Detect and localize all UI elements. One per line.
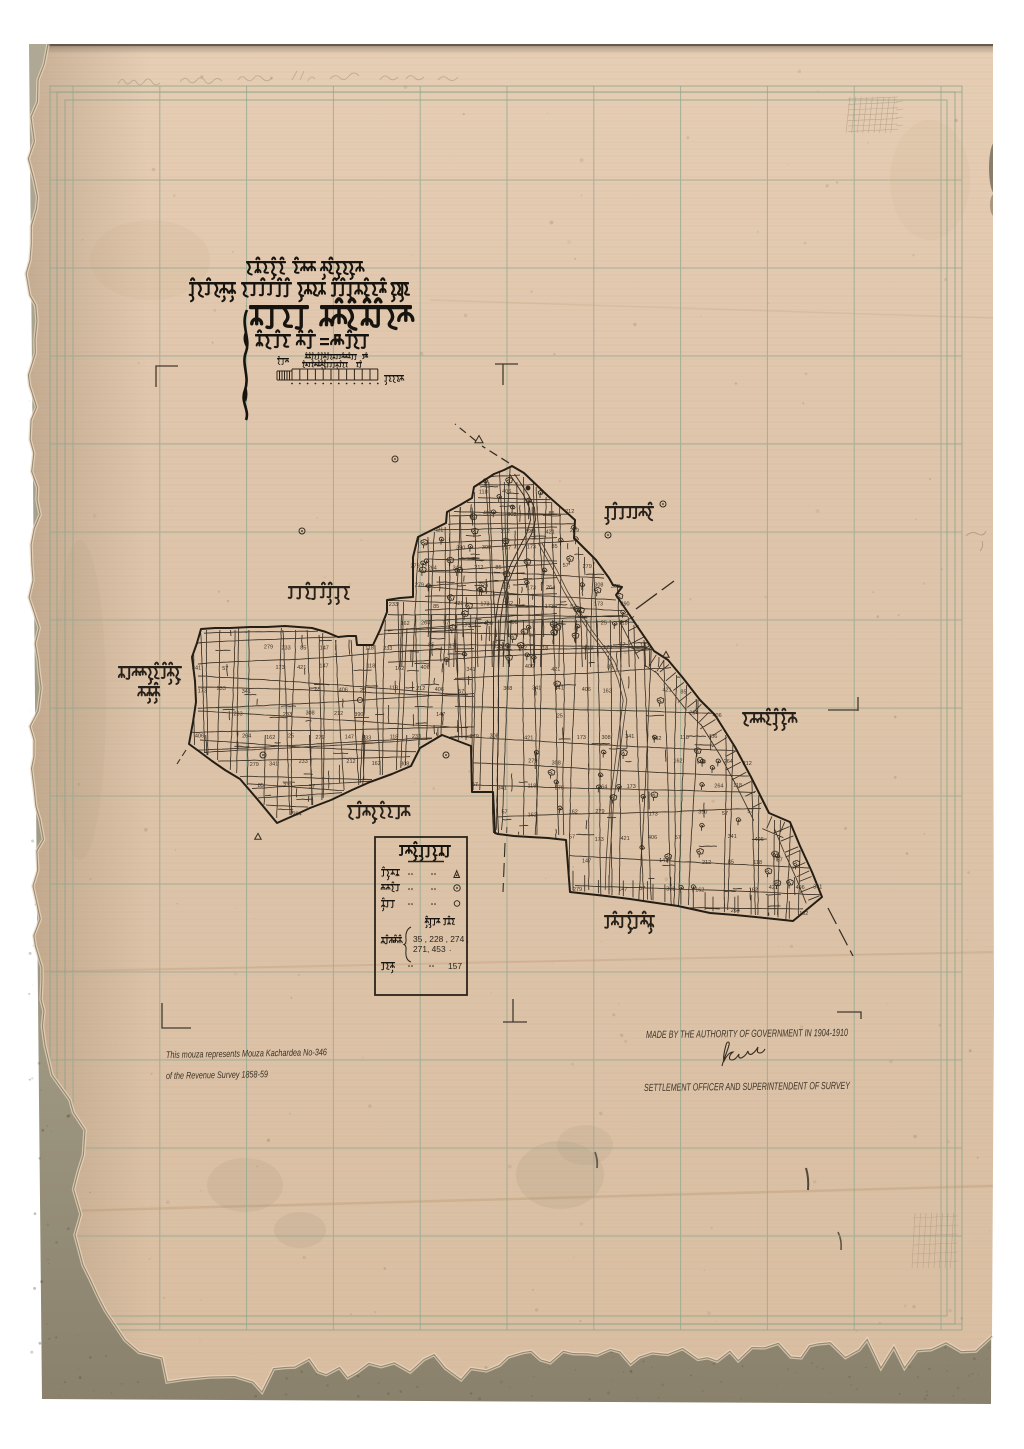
svg-text:147: 147	[320, 645, 329, 651]
svg-text:.: .	[449, 943, 451, 953]
svg-text:25: 25	[557, 713, 563, 719]
svg-text:SETTLEMENT OFFICER AND SUPERIN: SETTLEMENT OFFICER AND SUPERINTENDENT OF…	[644, 1081, 851, 1094]
svg-text:57: 57	[458, 689, 464, 695]
svg-text:162: 162	[673, 759, 682, 765]
svg-text:118: 118	[528, 784, 537, 790]
svg-text:264: 264	[421, 621, 430, 627]
svg-text:173: 173	[527, 545, 536, 551]
svg-text:173: 173	[627, 784, 636, 790]
svg-text:118: 118	[389, 686, 398, 692]
svg-text:212: 212	[474, 565, 483, 571]
svg-text:406: 406	[508, 620, 517, 626]
svg-text:118: 118	[367, 664, 376, 670]
svg-text:118: 118	[365, 645, 374, 651]
svg-text:162: 162	[395, 666, 404, 672]
svg-text:57: 57	[639, 886, 645, 892]
svg-text:57: 57	[309, 784, 315, 790]
svg-text:147: 147	[502, 546, 511, 552]
svg-text:173: 173	[480, 601, 489, 607]
svg-text:57: 57	[777, 858, 783, 864]
svg-text:279: 279	[470, 734, 479, 740]
svg-text:264: 264	[242, 734, 251, 740]
svg-text:421: 421	[524, 736, 533, 742]
svg-text:406: 406	[502, 489, 511, 495]
svg-text:279: 279	[411, 564, 420, 570]
svg-text:212: 212	[334, 711, 343, 717]
svg-text:118: 118	[619, 621, 628, 627]
svg-text:85: 85	[428, 642, 434, 648]
svg-text:308: 308	[552, 760, 561, 766]
svg-text:308: 308	[507, 512, 516, 518]
svg-text:85: 85	[495, 565, 501, 571]
svg-text:of the Revenue Survey 1858-59: of the Revenue Survey 1858-59	[166, 1069, 269, 1082]
svg-text:279: 279	[264, 645, 273, 651]
svg-text:173: 173	[603, 645, 612, 651]
svg-text:173: 173	[640, 643, 649, 649]
svg-text:390: 390	[698, 810, 707, 816]
svg-text:162: 162	[603, 689, 612, 695]
svg-text:279: 279	[595, 809, 604, 815]
svg-text:212: 212	[702, 860, 711, 866]
svg-text:118: 118	[680, 735, 689, 741]
svg-text:85: 85	[680, 689, 686, 695]
svg-text:421: 421	[297, 665, 306, 671]
svg-text:57: 57	[222, 666, 228, 672]
svg-text:406: 406	[421, 665, 430, 671]
svg-text:390: 390	[354, 712, 363, 718]
svg-text:57: 57	[675, 835, 681, 841]
svg-text:406: 406	[708, 734, 717, 740]
svg-text:341: 341	[269, 762, 278, 768]
svg-text:212: 212	[416, 686, 425, 692]
svg-text:162: 162	[401, 621, 410, 627]
svg-text:85: 85	[258, 783, 264, 789]
svg-text:162: 162	[266, 735, 275, 741]
svg-text:162: 162	[504, 601, 513, 607]
svg-text:57: 57	[502, 810, 508, 816]
svg-text:MADE BY THE AUTHORITY OF GOVER: MADE BY THE AUTHORITY OF GOVERNMENT IN 1…	[646, 1028, 848, 1041]
svg-text:162: 162	[528, 812, 537, 818]
svg-text:308: 308	[503, 686, 512, 692]
svg-text:173: 173	[527, 585, 536, 591]
svg-text:421: 421	[662, 688, 671, 694]
svg-text:162: 162	[518, 646, 527, 652]
svg-text:57: 57	[722, 811, 728, 817]
svg-text:57: 57	[747, 809, 753, 815]
svg-text:25: 25	[288, 734, 294, 740]
svg-text:85: 85	[549, 511, 555, 517]
svg-text:85: 85	[728, 859, 734, 865]
svg-text:118: 118	[733, 783, 742, 789]
svg-text:57: 57	[620, 643, 626, 649]
svg-text:406: 406	[195, 734, 204, 740]
svg-text:279: 279	[583, 564, 592, 570]
svg-text:233: 233	[362, 735, 371, 741]
svg-text:173: 173	[649, 811, 658, 817]
svg-text:173: 173	[595, 837, 604, 843]
svg-text:279: 279	[415, 583, 424, 589]
svg-text:118: 118	[479, 490, 488, 496]
svg-text:308: 308	[666, 887, 675, 893]
svg-text:341: 341	[466, 667, 475, 673]
svg-text:233: 233	[299, 759, 308, 765]
svg-text:279: 279	[250, 762, 259, 768]
svg-text:390: 390	[456, 546, 465, 552]
svg-text:118: 118	[540, 646, 549, 652]
svg-text:85: 85	[433, 604, 439, 610]
svg-text:406: 406	[582, 687, 591, 693]
svg-text:341: 341	[498, 786, 507, 792]
svg-text:57: 57	[443, 620, 449, 626]
svg-text:341: 341	[625, 734, 634, 740]
svg-text:279: 279	[315, 735, 324, 741]
svg-text:157: 157	[448, 961, 462, 971]
svg-text:264: 264	[689, 711, 698, 717]
svg-text:279: 279	[528, 758, 537, 764]
svg-text:421: 421	[454, 601, 463, 607]
svg-text:341: 341	[532, 686, 541, 692]
svg-text:57: 57	[569, 835, 575, 841]
svg-text:341: 341	[728, 834, 737, 840]
svg-text:162: 162	[749, 888, 758, 894]
svg-text:147: 147	[582, 859, 591, 865]
svg-text:85: 85	[315, 687, 321, 693]
svg-text:264: 264	[724, 759, 733, 765]
svg-text:173: 173	[276, 665, 285, 671]
svg-text:173: 173	[198, 689, 207, 695]
svg-text:406: 406	[483, 510, 492, 516]
svg-text:118: 118	[390, 734, 399, 740]
svg-text:233: 233	[282, 646, 291, 652]
svg-text:406: 406	[648, 835, 657, 841]
svg-text:162: 162	[695, 888, 704, 894]
svg-text:162: 162	[372, 761, 381, 767]
svg-text:421: 421	[546, 530, 555, 536]
svg-text:406: 406	[755, 837, 764, 843]
svg-text:264: 264	[428, 565, 437, 571]
svg-text:308: 308	[306, 711, 315, 717]
svg-text:212: 212	[584, 646, 593, 652]
svg-text:147: 147	[345, 735, 354, 741]
svg-text:173: 173	[545, 604, 554, 610]
svg-text:147: 147	[319, 664, 328, 670]
svg-text:390: 390	[482, 545, 491, 551]
svg-text:212: 212	[346, 759, 355, 765]
svg-text:233: 233	[217, 686, 226, 692]
svg-text:25: 25	[601, 621, 607, 627]
svg-text:421: 421	[551, 667, 560, 673]
svg-text:271, 453: 271, 453	[413, 944, 446, 954]
svg-text:57: 57	[563, 563, 569, 569]
svg-text:147: 147	[618, 887, 627, 893]
svg-text:406: 406	[484, 621, 493, 627]
svg-text:308: 308	[490, 733, 499, 739]
svg-text:406: 406	[435, 687, 444, 693]
svg-text:212: 212	[501, 529, 510, 535]
svg-text:162: 162	[569, 810, 578, 816]
svg-text:264: 264	[546, 585, 555, 591]
svg-text:35 , 228 , 274 ,: 35 , 228 , 274 ,	[413, 934, 469, 944]
svg-text:173: 173	[594, 602, 603, 608]
svg-text:85: 85	[300, 645, 306, 651]
svg-text:406: 406	[796, 885, 805, 891]
svg-text:406: 406	[339, 688, 348, 694]
svg-text:173: 173	[462, 623, 471, 629]
svg-text:406: 406	[525, 664, 534, 670]
svg-text:173: 173	[577, 735, 586, 741]
svg-text:264: 264	[714, 784, 723, 790]
svg-text:173: 173	[449, 644, 458, 650]
svg-text:85: 85	[552, 544, 558, 550]
svg-text:233: 233	[383, 646, 392, 652]
svg-text:264: 264	[731, 908, 740, 914]
svg-text:25: 25	[360, 688, 366, 694]
svg-text:233: 233	[389, 602, 398, 608]
svg-text:308: 308	[602, 735, 611, 741]
svg-text:341: 341	[242, 689, 251, 695]
svg-text:233: 233	[283, 783, 292, 789]
svg-text:118: 118	[753, 860, 762, 866]
svg-text:233: 233	[234, 712, 243, 718]
svg-text:421: 421	[621, 836, 630, 842]
svg-text:233: 233	[283, 712, 292, 718]
svg-text:147: 147	[436, 712, 445, 718]
svg-text:233: 233	[412, 734, 421, 740]
